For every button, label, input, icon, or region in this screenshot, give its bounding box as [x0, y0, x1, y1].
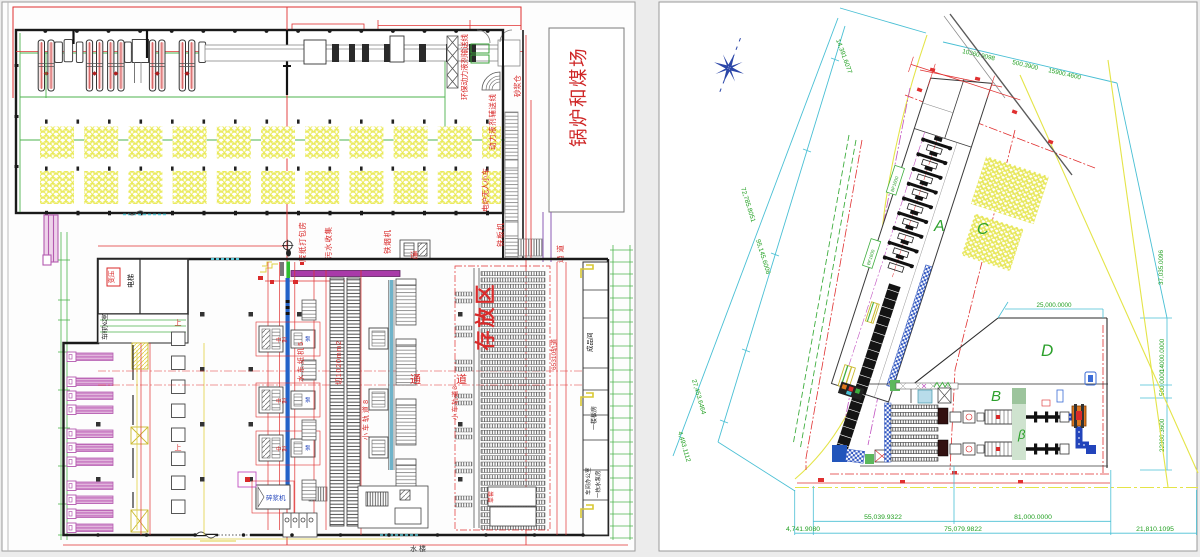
svg-text:B: B	[991, 388, 1001, 405]
svg-text:单套: 单套	[487, 491, 495, 503]
svg-text:A: A	[933, 218, 945, 235]
svg-text:通: 通	[410, 373, 421, 386]
svg-text:泵: 泵	[305, 336, 311, 343]
svg-text:14000.0000: 14000.0000	[1159, 338, 1166, 372]
svg-text:25,000.0000: 25,000.0000	[1036, 302, 1072, 309]
svg-text:成品间: 成品间	[585, 333, 594, 353]
svg-text:存放区: 存放区	[473, 282, 497, 351]
svg-text:小车轨道3: 小车轨道3	[450, 386, 459, 420]
svg-text:废纸打包房: 废纸打包房	[297, 222, 307, 262]
svg-text:81,000.0000: 81,000.0000	[1014, 514, 1052, 521]
svg-text:电炉无人小车: 电炉无人小车	[480, 168, 490, 213]
svg-text:动力液剂辅送线: 动力液剂辅送线	[487, 94, 497, 151]
svg-text:75,079.9822: 75,079.9822	[944, 526, 982, 533]
svg-text:环保动力液剂输送线: 环保动力液剂输送线	[459, 34, 469, 101]
svg-text:中高: 中高	[276, 336, 288, 344]
svg-text:一栋水泵房: 一栋水泵房	[594, 470, 602, 498]
svg-text:37,035.0096: 37,035.0096	[1158, 249, 1165, 285]
svg-text:锅炉和煤场: 锅炉和煤场	[568, 47, 589, 147]
svg-text:碎浆机: 碎浆机	[266, 493, 286, 502]
svg-text:500.0000: 500.0000	[1159, 369, 1166, 396]
svg-text:铁烟机: 铁烟机	[382, 230, 392, 255]
svg-text:泵: 泵	[305, 397, 311, 404]
svg-text:中高: 中高	[276, 397, 288, 405]
svg-text:通: 通	[410, 250, 418, 260]
svg-text:55,039.9322: 55,039.9322	[864, 514, 902, 521]
svg-text:电梯: 电梯	[126, 274, 135, 288]
svg-text:泵: 泵	[305, 445, 311, 452]
svg-text:砂浆仓: 砂浆仓	[512, 75, 522, 98]
svg-text:65310轨道: 65310轨道	[549, 338, 558, 370]
svg-text:上: 上	[175, 443, 182, 452]
svg-text:β: β	[1017, 427, 1026, 442]
svg-text:切1020mm2: 切1020mm2	[335, 341, 343, 385]
svg-text:车间办公室: 车间办公室	[101, 314, 109, 340]
svg-text:铁板机: 铁板机	[495, 223, 505, 248]
svg-text:污水收集: 污水收集	[323, 227, 333, 260]
svg-text:车间办公室: 车间办公室	[584, 467, 592, 495]
svg-text:水 楼: 水 楼	[410, 544, 426, 553]
svg-text:变压: 变压	[107, 270, 116, 284]
svg-text:21,810.1095: 21,810.1095	[1136, 526, 1174, 533]
svg-text:中高: 中高	[276, 445, 288, 453]
svg-text:道: 道	[456, 372, 467, 386]
svg-text:上: 上	[175, 318, 182, 327]
svg-text:4,741.9080: 4,741.9080	[786, 526, 820, 533]
svg-text:一楼板房: 一楼板房	[590, 406, 598, 430]
svg-text:C: C	[977, 221, 989, 238]
svg-text:D: D	[1041, 341, 1053, 360]
